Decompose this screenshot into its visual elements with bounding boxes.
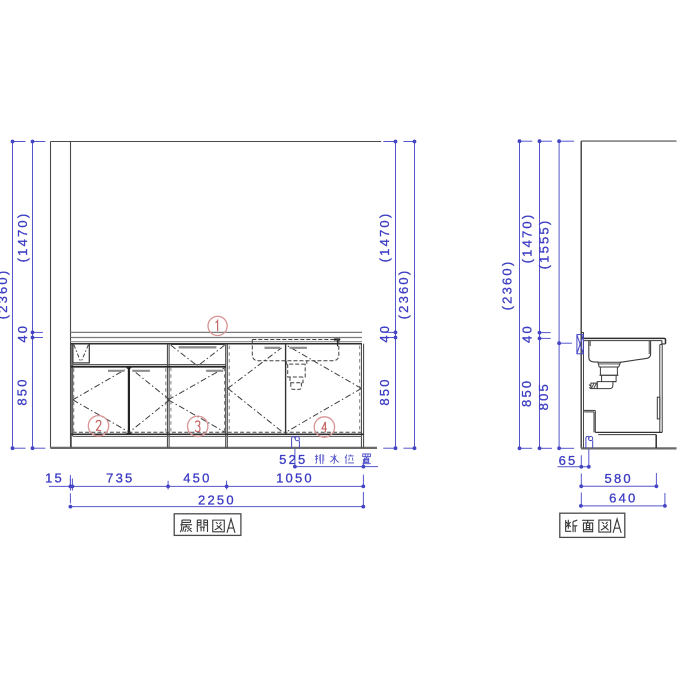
svg-text:2250: 2250 (198, 492, 236, 507)
svg-text:580: 580 (605, 471, 633, 486)
svg-text:735: 735 (106, 471, 134, 486)
svg-text:450: 450 (183, 471, 211, 486)
svg-text:1050: 1050 (276, 471, 314, 486)
svg-text:(2360): (2360) (0, 269, 10, 320)
svg-text:15: 15 (45, 471, 64, 486)
svg-text:(1470): (1470) (377, 212, 392, 263)
svg-text:850: 850 (519, 379, 534, 407)
svg-text:65: 65 (559, 453, 578, 468)
svg-text:(2360): (2360) (396, 269, 411, 320)
svg-text:805: 805 (536, 382, 551, 410)
svg-text:640: 640 (609, 491, 637, 506)
svg-text:525: 525 (279, 452, 307, 467)
svg-text:40: 40 (377, 324, 392, 343)
svg-text:(1555): (1555) (536, 219, 551, 270)
svg-text:(2360): (2360) (500, 260, 515, 311)
svg-text:(1470): (1470) (15, 212, 30, 263)
svg-text:(1470): (1470) (519, 213, 534, 264)
svg-text:850: 850 (377, 377, 392, 405)
svg-text:40: 40 (15, 324, 30, 343)
svg-text:850: 850 (15, 377, 30, 405)
svg-text:40: 40 (519, 324, 534, 343)
